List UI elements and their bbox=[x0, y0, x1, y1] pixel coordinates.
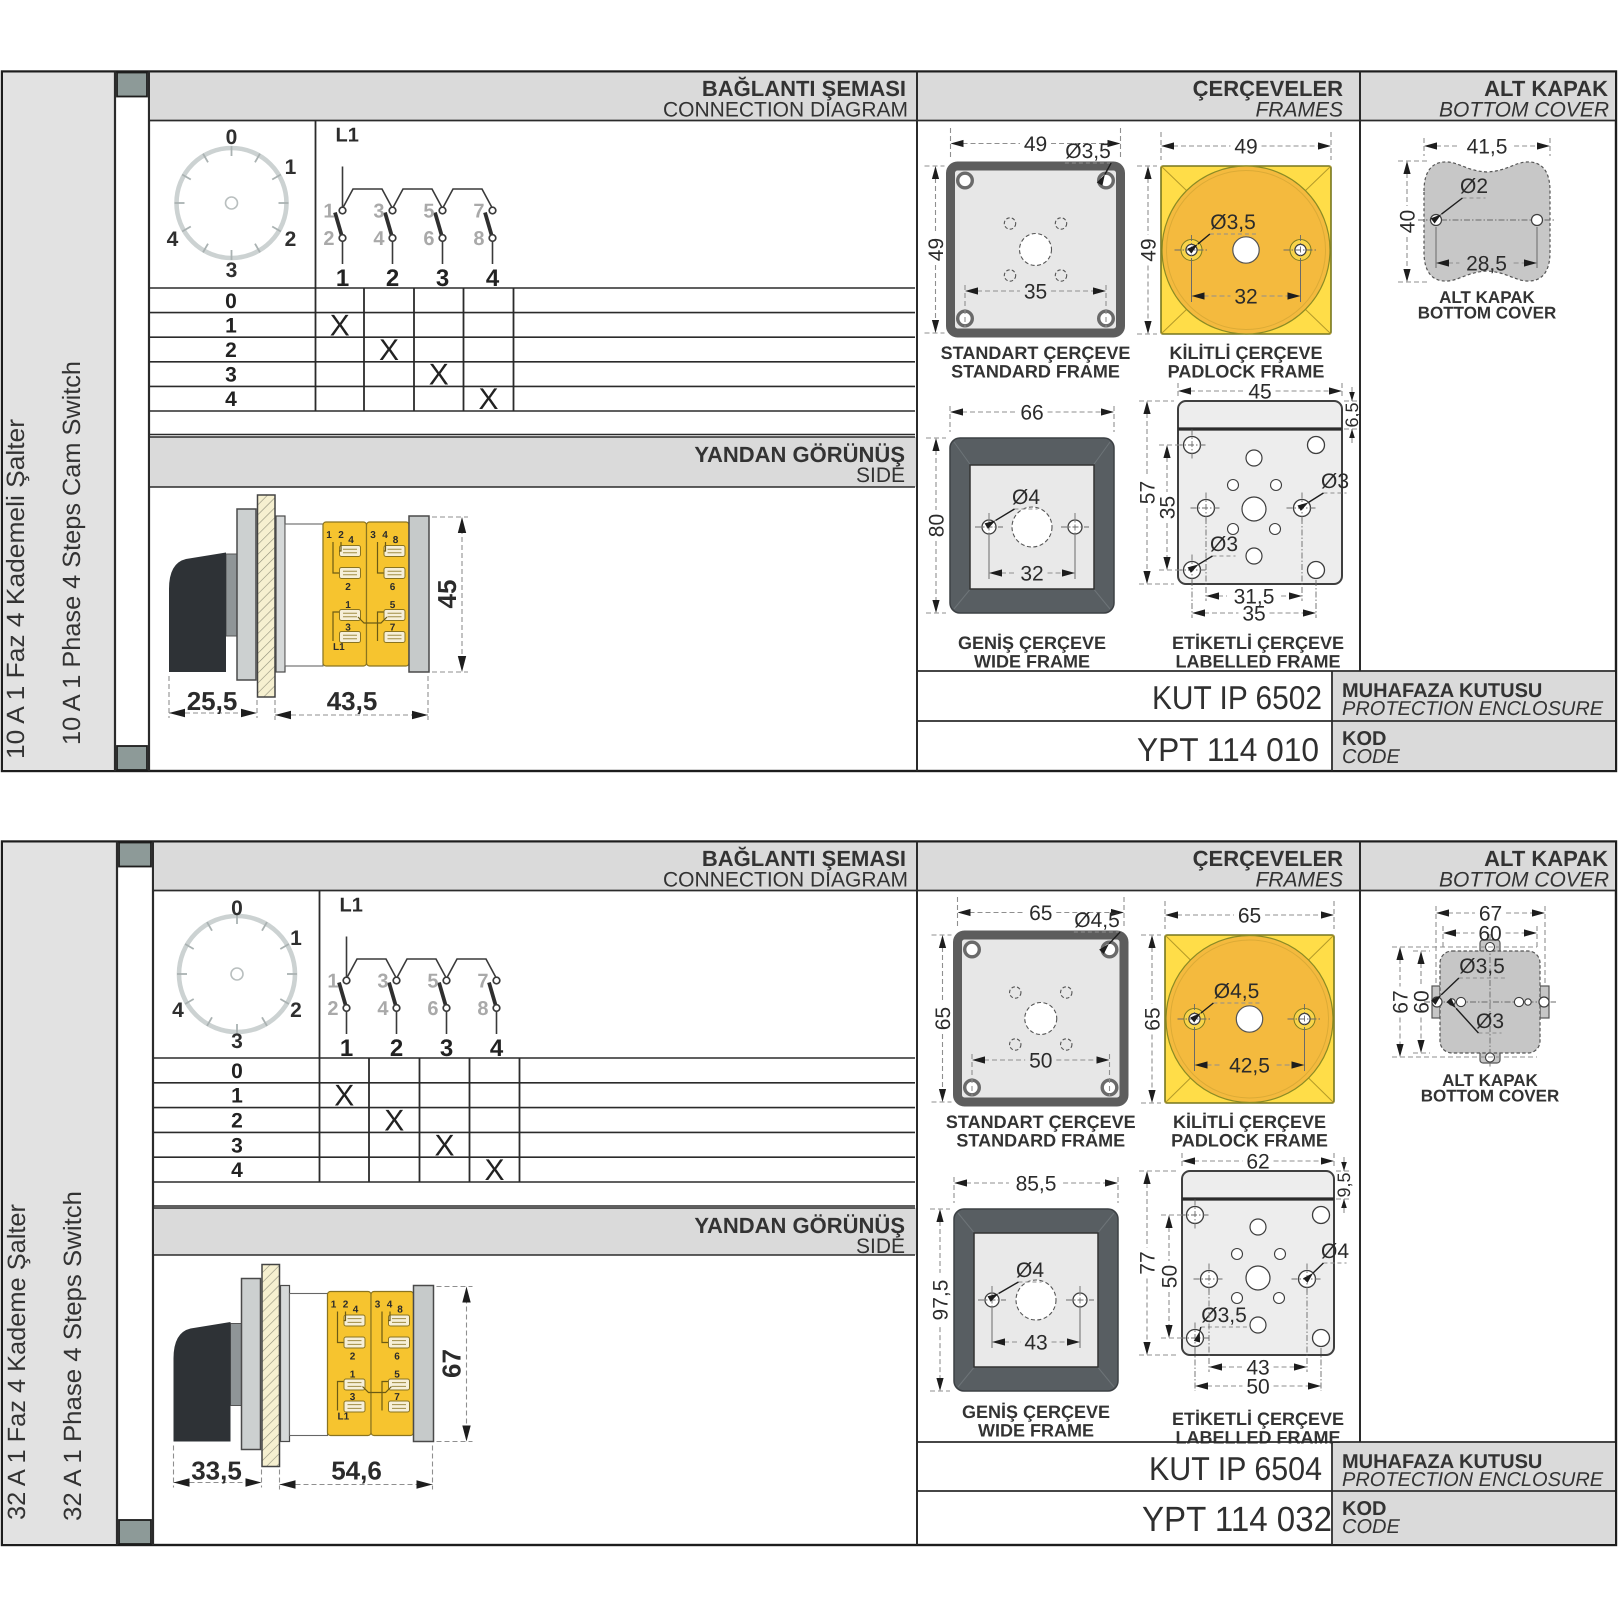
svg-text:1: 1 bbox=[323, 201, 334, 223]
svg-text:GENİŞ ÇERÇEVE: GENİŞ ÇERÇEVE bbox=[962, 1402, 1110, 1422]
svg-text:60: 60 bbox=[1410, 990, 1433, 1013]
svg-text:STANDART ÇERÇEVE: STANDART ÇERÇEVE bbox=[946, 1112, 1136, 1132]
svg-text:L1: L1 bbox=[333, 642, 345, 653]
svg-text:1: 1 bbox=[326, 530, 332, 541]
svg-text:1: 1 bbox=[225, 314, 237, 337]
svg-text:L1: L1 bbox=[336, 125, 359, 147]
svg-text:50: 50 bbox=[1246, 1375, 1269, 1398]
svg-text:67: 67 bbox=[437, 1349, 467, 1378]
svg-text:32: 32 bbox=[1234, 285, 1257, 308]
svg-text:8: 8 bbox=[477, 998, 488, 1020]
svg-text:WIDE FRAME: WIDE FRAME bbox=[978, 1421, 1094, 1441]
svg-text:4: 4 bbox=[377, 998, 389, 1020]
svg-text:BOTTOM COVER: BOTTOM COVER bbox=[1439, 869, 1609, 892]
svg-text:YPT 114 010: YPT 114 010 bbox=[1137, 731, 1319, 768]
svg-text:42,5: 42,5 bbox=[1229, 1054, 1270, 1077]
svg-text:L1: L1 bbox=[338, 1412, 350, 1423]
svg-text:Ø3,5: Ø3,5 bbox=[1459, 955, 1505, 978]
svg-text:STANDARD FRAME: STANDARD FRAME bbox=[956, 1131, 1125, 1151]
svg-text:1: 1 bbox=[285, 156, 297, 179]
svg-text:Ø4: Ø4 bbox=[1016, 1259, 1044, 1282]
svg-text:65: 65 bbox=[1141, 1007, 1164, 1030]
svg-text:7: 7 bbox=[477, 971, 488, 993]
svg-text:49: 49 bbox=[1137, 238, 1160, 261]
svg-text:65: 65 bbox=[1029, 902, 1052, 925]
svg-text:X: X bbox=[478, 383, 498, 416]
svg-text:49: 49 bbox=[925, 238, 948, 261]
svg-text:BAĞLANTI ŞEMASI: BAĞLANTI ŞEMASI bbox=[702, 76, 906, 101]
svg-text:GENİŞ ÇERÇEVE: GENİŞ ÇERÇEVE bbox=[958, 633, 1106, 653]
svg-text:X: X bbox=[434, 1129, 454, 1162]
svg-text:Ø3: Ø3 bbox=[1321, 470, 1349, 493]
svg-text:60: 60 bbox=[1478, 922, 1501, 945]
svg-text:BOTTOM COVER: BOTTOM COVER bbox=[1421, 1087, 1560, 1106]
svg-text:3: 3 bbox=[231, 1134, 243, 1157]
svg-text:9,5: 9,5 bbox=[1334, 1172, 1354, 1197]
svg-text:65: 65 bbox=[932, 1007, 955, 1030]
svg-text:PADLOCK FRAME: PADLOCK FRAME bbox=[1171, 1131, 1328, 1151]
svg-text:1: 1 bbox=[327, 971, 338, 993]
svg-text:CODE: CODE bbox=[1342, 746, 1400, 768]
svg-text:2: 2 bbox=[327, 998, 338, 1020]
svg-text:6: 6 bbox=[427, 998, 438, 1020]
svg-text:4: 4 bbox=[167, 228, 179, 251]
svg-text:4: 4 bbox=[225, 388, 237, 411]
svg-text:41,5: 41,5 bbox=[1467, 135, 1508, 158]
svg-text:97,5: 97,5 bbox=[929, 1280, 952, 1321]
svg-text:7: 7 bbox=[394, 1392, 400, 1403]
svg-text:X: X bbox=[429, 359, 449, 392]
svg-text:43: 43 bbox=[1024, 1331, 1047, 1354]
svg-text:1: 1 bbox=[345, 600, 351, 611]
svg-text:1: 1 bbox=[331, 1300, 337, 1311]
svg-text:LABELLED FRAME: LABELLED FRAME bbox=[1176, 652, 1341, 672]
svg-text:35: 35 bbox=[1242, 602, 1265, 625]
svg-text:X: X bbox=[384, 1105, 404, 1138]
svg-text:54,6: 54,6 bbox=[331, 1456, 382, 1486]
svg-text:2: 2 bbox=[350, 1352, 356, 1363]
svg-text:35: 35 bbox=[1024, 280, 1047, 303]
svg-text:Ø2: Ø2 bbox=[1460, 175, 1488, 198]
svg-text:45: 45 bbox=[432, 580, 462, 609]
svg-text:ALT KAPAK: ALT KAPAK bbox=[1484, 76, 1608, 101]
svg-text:4: 4 bbox=[231, 1159, 243, 1182]
svg-text:YPT 114 032: YPT 114 032 bbox=[1142, 1500, 1332, 1539]
svg-text:10 A 1 Faz 4 Kademeli Şalter: 10 A 1 Faz 4 Kademeli Şalter bbox=[2, 419, 30, 759]
svg-text:8: 8 bbox=[393, 535, 399, 546]
svg-text:KİLİTLİ ÇERÇEVE: KİLİTLİ ÇERÇEVE bbox=[1173, 1112, 1326, 1132]
svg-text:8: 8 bbox=[397, 1305, 403, 1316]
svg-text:3: 3 bbox=[350, 1392, 356, 1403]
svg-text:LABELLED FRAME: LABELLED FRAME bbox=[1176, 1428, 1341, 1448]
svg-text:SIDE: SIDE bbox=[856, 1235, 905, 1258]
svg-text:4: 4 bbox=[373, 228, 385, 250]
svg-text:50: 50 bbox=[1029, 1049, 1052, 1072]
svg-text:5: 5 bbox=[427, 971, 438, 993]
svg-text:ETİKETLİ ÇERÇEVE: ETİKETLİ ÇERÇEVE bbox=[1172, 633, 1344, 653]
svg-text:4: 4 bbox=[382, 530, 388, 541]
svg-text:32 A 1 Phase 4 Steps Switch: 32 A 1 Phase 4 Steps Switch bbox=[59, 1191, 87, 1521]
svg-text:CODE: CODE bbox=[1342, 1516, 1400, 1538]
svg-text:Ø4: Ø4 bbox=[1012, 486, 1040, 509]
svg-text:6,5: 6,5 bbox=[1342, 402, 1362, 427]
svg-text:Ø4,5: Ø4,5 bbox=[1074, 909, 1120, 932]
svg-text:0: 0 bbox=[231, 897, 243, 920]
svg-text:10 A 1 Phase 4 Steps Cam Switc: 10 A 1 Phase 4 Steps Cam Switch bbox=[58, 361, 86, 745]
svg-text:2: 2 bbox=[343, 1300, 349, 1311]
svg-text:0: 0 bbox=[226, 126, 238, 149]
svg-text:Ø3,5: Ø3,5 bbox=[1201, 1304, 1247, 1327]
svg-text:65: 65 bbox=[1238, 904, 1261, 927]
svg-text:6: 6 bbox=[390, 582, 396, 593]
svg-text:32: 32 bbox=[1020, 562, 1043, 585]
svg-text:5: 5 bbox=[394, 1370, 400, 1381]
svg-text:WIDE FRAME: WIDE FRAME bbox=[974, 652, 1090, 672]
svg-text:2: 2 bbox=[323, 228, 334, 250]
svg-text:33,5: 33,5 bbox=[191, 1456, 242, 1486]
svg-text:FRAMES: FRAMES bbox=[1255, 99, 1343, 122]
svg-text:50: 50 bbox=[1158, 1265, 1181, 1288]
svg-text:5: 5 bbox=[390, 600, 396, 611]
svg-text:Ø4: Ø4 bbox=[1321, 1240, 1349, 1263]
svg-text:4: 4 bbox=[172, 999, 184, 1022]
svg-text:BAĞLANTI ŞEMASI: BAĞLANTI ŞEMASI bbox=[702, 846, 906, 871]
svg-text:6: 6 bbox=[394, 1352, 400, 1363]
svg-text:7: 7 bbox=[473, 201, 484, 223]
svg-text:X: X bbox=[484, 1154, 504, 1187]
svg-text:PROTECTION ENCLOSURE: PROTECTION ENCLOSURE bbox=[1342, 698, 1604, 720]
svg-text:L1: L1 bbox=[340, 895, 363, 917]
svg-text:8: 8 bbox=[473, 228, 484, 250]
svg-text:49: 49 bbox=[1234, 135, 1257, 158]
svg-text:KUT IP 6504: KUT IP 6504 bbox=[1149, 1450, 1322, 1487]
svg-text:ÇERÇEVELER: ÇERÇEVELER bbox=[1193, 846, 1343, 871]
svg-text:X: X bbox=[330, 309, 350, 342]
svg-text:4: 4 bbox=[353, 1305, 359, 1316]
svg-text:62: 62 bbox=[1246, 1150, 1269, 1173]
svg-text:X: X bbox=[334, 1080, 354, 1113]
svg-text:35: 35 bbox=[1156, 496, 1179, 519]
svg-text:49: 49 bbox=[1024, 133, 1047, 156]
svg-text:3: 3 bbox=[377, 971, 388, 993]
svg-text:STANDARD FRAME: STANDARD FRAME bbox=[951, 362, 1120, 382]
svg-text:3: 3 bbox=[225, 364, 237, 387]
svg-text:45: 45 bbox=[1248, 380, 1271, 403]
svg-text:2: 2 bbox=[285, 228, 297, 251]
svg-text:CONNECTION DIAGRAM: CONNECTION DIAGRAM bbox=[663, 869, 908, 892]
svg-text:4: 4 bbox=[387, 1300, 393, 1311]
svg-text:PROTECTION ENCLOSURE: PROTECTION ENCLOSURE bbox=[1342, 1469, 1604, 1491]
svg-text:40: 40 bbox=[1396, 210, 1419, 233]
svg-text:7: 7 bbox=[390, 623, 396, 634]
svg-text:BOTTOM COVER: BOTTOM COVER bbox=[1418, 304, 1557, 323]
svg-text:BOTTOM COVER: BOTTOM COVER bbox=[1439, 99, 1609, 122]
svg-text:X: X bbox=[379, 334, 399, 367]
svg-text:6: 6 bbox=[423, 228, 434, 250]
svg-text:KUT IP 6502: KUT IP 6502 bbox=[1152, 679, 1322, 716]
svg-text:KİLİTLİ ÇERÇEVE: KİLİTLİ ÇERÇEVE bbox=[1169, 343, 1322, 363]
svg-text:2: 2 bbox=[231, 1110, 243, 1133]
svg-text:2: 2 bbox=[225, 339, 237, 362]
svg-text:32 A 1 Faz 4 Kademe Şalter: 32 A 1 Faz 4 Kademe Şalter bbox=[3, 1204, 31, 1520]
svg-text:4: 4 bbox=[348, 535, 354, 546]
svg-text:3: 3 bbox=[370, 530, 376, 541]
svg-text:3: 3 bbox=[231, 1030, 243, 1053]
svg-text:ETİKETLİ ÇERÇEVE: ETİKETLİ ÇERÇEVE bbox=[1172, 1409, 1344, 1429]
svg-text:Ø3: Ø3 bbox=[1210, 533, 1238, 556]
svg-text:25,5: 25,5 bbox=[187, 686, 238, 716]
svg-text:5: 5 bbox=[423, 201, 434, 223]
svg-text:3: 3 bbox=[345, 623, 351, 634]
svg-text:2: 2 bbox=[290, 999, 302, 1022]
svg-text:43,5: 43,5 bbox=[327, 686, 378, 716]
svg-text:Ø3,5: Ø3,5 bbox=[1065, 140, 1111, 163]
svg-text:Ø3: Ø3 bbox=[1476, 1010, 1504, 1033]
svg-text:STANDART ÇERÇEVE: STANDART ÇERÇEVE bbox=[941, 343, 1131, 363]
svg-text:SIDE: SIDE bbox=[856, 464, 905, 487]
svg-text:1: 1 bbox=[350, 1370, 356, 1381]
svg-text:1: 1 bbox=[290, 927, 302, 950]
svg-text:28,5: 28,5 bbox=[1466, 252, 1507, 275]
svg-text:3: 3 bbox=[226, 259, 238, 282]
svg-text:Ø4,5: Ø4,5 bbox=[1214, 980, 1260, 1003]
svg-text:ALT KAPAK: ALT KAPAK bbox=[1484, 846, 1608, 871]
svg-text:3: 3 bbox=[375, 1300, 381, 1311]
svg-text:Ø3,5: Ø3,5 bbox=[1210, 211, 1256, 234]
svg-text:77: 77 bbox=[1136, 1251, 1159, 1274]
svg-text:3: 3 bbox=[373, 201, 384, 223]
svg-text:85,5: 85,5 bbox=[1016, 1172, 1057, 1195]
svg-text:CONNECTION DIAGRAM: CONNECTION DIAGRAM bbox=[663, 99, 908, 122]
svg-text:ÇERÇEVELER: ÇERÇEVELER bbox=[1193, 76, 1343, 101]
svg-text:67: 67 bbox=[1389, 990, 1412, 1013]
svg-text:0: 0 bbox=[231, 1060, 243, 1083]
svg-text:1: 1 bbox=[231, 1085, 243, 1108]
svg-text:66: 66 bbox=[1020, 401, 1043, 424]
svg-text:FRAMES: FRAMES bbox=[1255, 869, 1343, 892]
svg-text:2: 2 bbox=[345, 582, 351, 593]
svg-text:0: 0 bbox=[225, 290, 237, 313]
svg-text:PADLOCK FRAME: PADLOCK FRAME bbox=[1168, 362, 1325, 382]
svg-text:80: 80 bbox=[925, 514, 948, 537]
svg-text:2: 2 bbox=[338, 530, 344, 541]
